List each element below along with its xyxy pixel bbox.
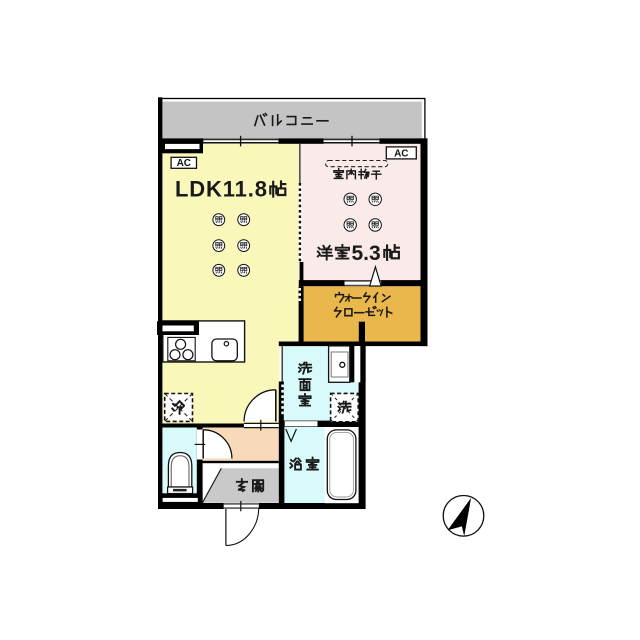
svg-text:AC: AC <box>177 158 191 169</box>
svg-text:LDK11.8: LDK11.8 <box>175 177 267 202</box>
svg-text:AC: AC <box>394 148 408 159</box>
svg-text:5.3: 5.3 <box>352 242 381 265</box>
